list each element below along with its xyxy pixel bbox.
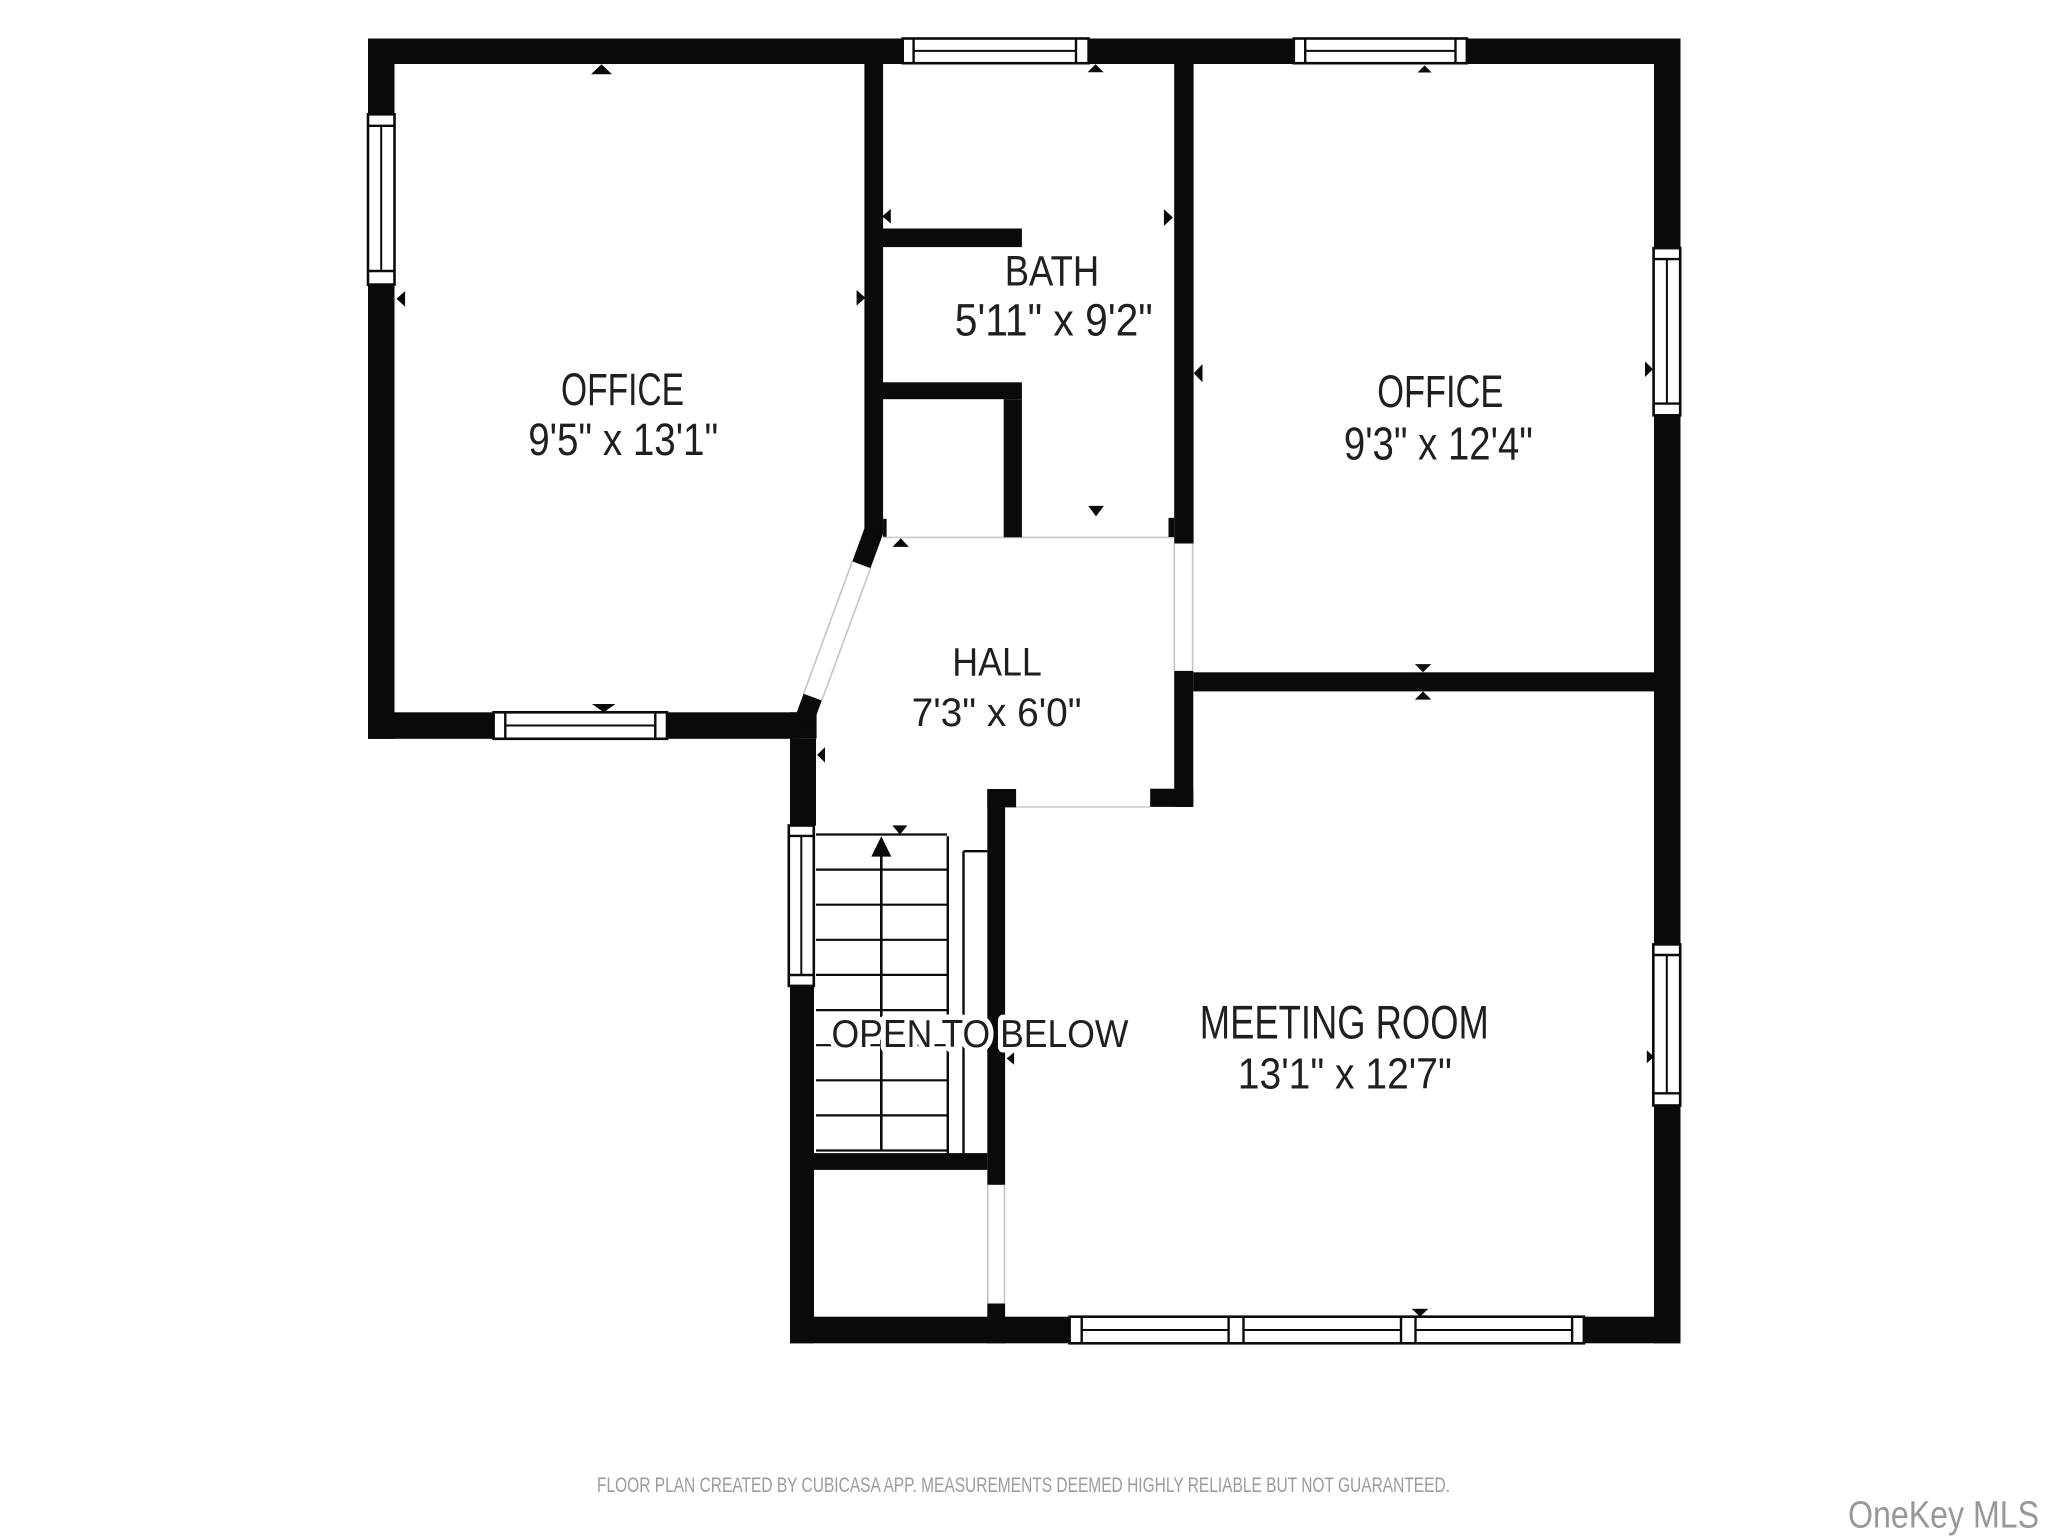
svg-text:9'3" x 12'4": 9'3" x 12'4" — [1344, 418, 1533, 470]
svg-text:MEETING ROOM: MEETING ROOM — [1200, 996, 1489, 1049]
svg-text:OFFICE: OFFICE — [561, 364, 684, 415]
svg-text:13'1" x 12'7": 13'1" x 12'7" — [1238, 1051, 1452, 1099]
svg-text:5'11" x 9'2": 5'11" x 9'2" — [955, 295, 1153, 346]
svg-text:OneKey MLS: OneKey MLS — [1848, 1495, 2039, 1536]
svg-text:OPEN TO BELOW: OPEN TO BELOW — [832, 1013, 1130, 1056]
svg-text:7'3" x 6'0": 7'3" x 6'0" — [912, 691, 1082, 735]
svg-text:9'5" x 13'1": 9'5" x 13'1" — [528, 414, 718, 465]
svg-text:FLOOR PLAN CREATED BY CUBICASA: FLOOR PLAN CREATED BY CUBICASA APP. MEAS… — [597, 1473, 1450, 1497]
svg-text:OFFICE: OFFICE — [1377, 366, 1503, 417]
svg-text:BATH: BATH — [1005, 249, 1100, 296]
svg-text:HALL: HALL — [952, 641, 1042, 685]
